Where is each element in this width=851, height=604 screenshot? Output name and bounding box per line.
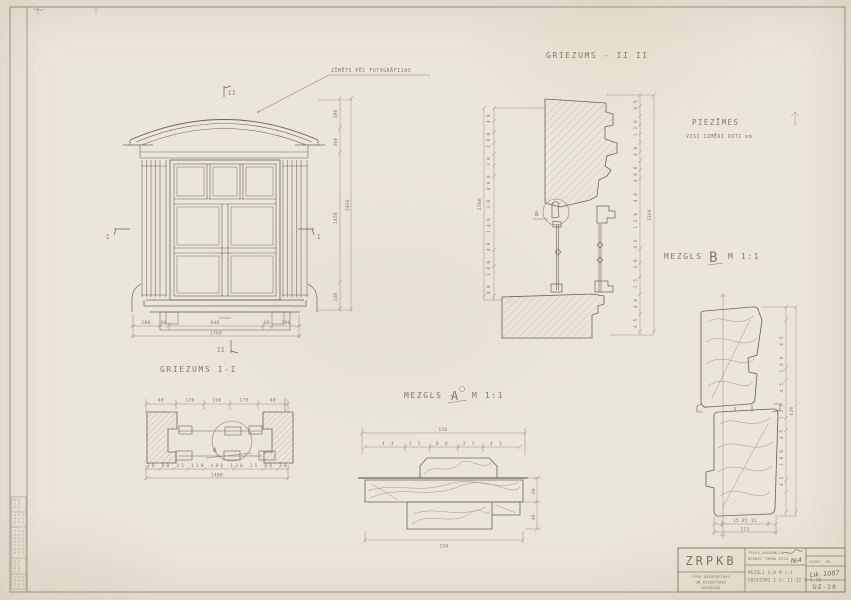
section-mark-ii-top: II [228,90,236,97]
svg-text:280: 280 [142,320,151,326]
section-i-title: GRIEZUMS I-I [160,365,237,374]
section-ii-title: GRIEZUMS - II II [546,51,649,60]
detail-a-callout: A [213,447,217,454]
project-line2: DEKORI TORŅA IELĀ [748,556,789,561]
window-dimension-labels: 280 60 840 60 280 1760 380 300 1450 330 … [142,110,351,337]
photo-callout: ZĪMĒTS PĒC FOTOGRĀFIJAS [257,67,430,113]
detail-b-title: MEZGLS - B M 1:1 [664,250,760,266]
svg-text:60: 60 [264,320,270,326]
detail-b-callout: B [535,211,539,218]
pilaster-left [141,160,167,297]
svg-text:1450: 1450 [333,212,339,224]
svg-text:40: 40 [158,398,164,404]
photo-callout-text: ZĪMĒTS PĒC FOTOGRĀFIJAS [331,67,411,74]
window-elevation-drawing [114,86,325,353]
svg-text:40: 40 [531,514,537,520]
section-ii-drawing [502,99,617,338]
svg-text:MEZGLS -: MEZGLS - [404,391,455,400]
svg-text:150: 150 [440,544,449,550]
svg-text:840: 840 [211,320,220,326]
svg-text:115: 115 [741,527,750,533]
svg-text:380: 380 [333,110,339,119]
svg-text:2300: 2300 [477,198,483,210]
org-code: ZRPKB [685,554,736,568]
drawing-sheet: II II I I ZĪMĒTS PĒC FOTOGRĀFIJAS 280 60… [0,0,851,600]
detail-a-drawing [358,458,528,529]
svg-text:M 1:1: M 1:1 [472,391,504,400]
content-line1: MEZGLI A;B M 1:1 [748,570,793,575]
svg-text:170: 170 [186,398,195,404]
svg-text:MEZGLS -: MEZGLS - [664,252,715,261]
svg-text:40 180 40 140 30 480: 40 180 40 140 30 480 30 180 40 [486,114,492,294]
org-line2: UN BIŠKOPĪBAS [696,580,727,585]
svg-text:170: 170 [240,398,249,404]
order-number-handwritten: Lik. 1087 [810,569,841,579]
svg-text:330: 330 [333,293,339,302]
svg-text:1400: 1400 [211,473,223,479]
svg-text:2300: 2300 [647,209,653,221]
drawing-canvas: II II I I ZĪMĒTS PĒC FOTOGRĀFIJAS 280 60… [0,0,851,600]
svg-text:280: 280 [282,320,291,326]
section-mark-i-right: I [317,234,321,241]
svg-text:30 80 25 130 480 130: 30 80 25 130 480 130 25 80 30 [147,463,287,469]
detail-a-title: MEZGLS - A M 1:1 [404,386,504,403]
title-block: ZRPKB LPSR DĀRZKOPĪBAS UN BIŠKOPĪBAS BIE… [678,548,845,592]
svg-text:300: 300 [333,138,339,147]
sheet-number: UZ-20 [813,584,837,591]
svg-text:620: 620 [789,407,795,416]
svg-text:M 1:1: M 1:1 [728,252,760,261]
svg-text:45 40 15 30 40 120: 45 40 15 30 40 120 40 480 40 120 45 [633,100,639,328]
svg-text:2460: 2460 [345,199,351,211]
stone-sketch-hatch-b [706,316,773,508]
section-mark-i-left: I [106,234,110,241]
org-line3: BIEDRĪBA [702,585,722,590]
notes-title: PIEZĪMES [692,118,739,127]
project-number-handwritten: №4 [789,556,802,565]
order-label: PASŪT. NR. [809,559,833,564]
notes-line: VISI IZMĒRI DOTI mm [686,133,752,140]
svg-text:15 85 15: 15 85 15 [733,518,757,524]
svg-text:40: 40 [270,398,276,404]
archive-stamp [12,497,27,589]
detail-b-drawing [697,293,780,538]
notes-block: PIEZĪMES VISI IZMĒRI DOTI mm [686,112,799,140]
org-line1: LPSR DĀRZKOPĪBAS [692,574,730,579]
pilaster-right [282,160,308,297]
svg-text:45 160 45 120 45 160: 45 160 45 120 45 160 45 [779,336,785,486]
section-i-drawing [147,398,293,463]
svg-text:150: 150 [439,427,448,433]
sheet-border [10,7,845,592]
svg-text:60: 60 [531,488,537,494]
signature-squiggle [782,550,803,554]
svg-text:A: A [451,389,459,403]
svg-text:60: 60 [161,320,167,326]
svg-text:160: 160 [213,398,222,404]
detail-b-dimension-labels: 45 160 45 120 45 160 45 620 15 85 15 115 [733,336,795,533]
detail-a-dimensions [360,428,541,543]
project-line1: TELPU ANSAMBLIS [748,551,783,555]
svg-text:1760: 1760 [210,331,222,337]
window-frame [170,160,280,300]
section-mark-ii-bottom: II [217,347,225,354]
